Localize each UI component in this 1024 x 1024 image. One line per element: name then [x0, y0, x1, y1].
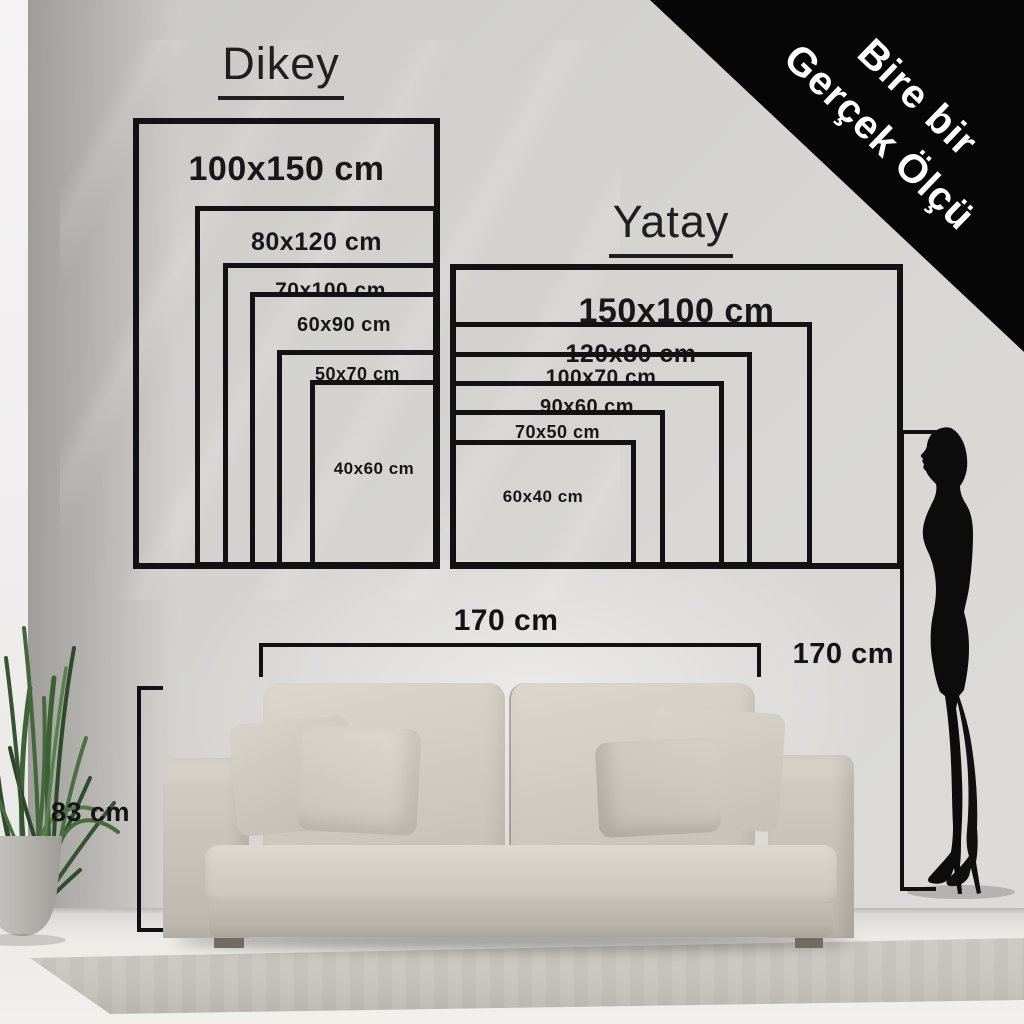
- plant-pot: [0, 836, 62, 936]
- throw-pillow: [297, 724, 421, 836]
- sofa-width-label: 170 cm: [259, 604, 753, 638]
- person-height-bracket: [900, 430, 936, 891]
- ribbon-text: Bire bir Gerçek Ölçü: [741, 0, 1024, 272]
- size-label: 100x150 cm: [139, 150, 434, 189]
- sofa-height-label: 83 cm: [48, 797, 130, 828]
- person-height-label: 170 cm: [780, 638, 894, 671]
- throw-pillow: [595, 737, 722, 838]
- dikey-title: Dikey: [186, 38, 376, 100]
- size-label: 60x40 cm: [455, 487, 631, 507]
- potted-plant: [0, 568, 130, 968]
- size-guide-scene: Dikey 100x150 cm 80x120 cm 70x100 cm 60x…: [0, 0, 1024, 1024]
- sofa-height-bracket: [137, 686, 163, 932]
- size-rect-40x60: 40x60 cm: [310, 380, 438, 567]
- size-label: 80x120 cm: [200, 228, 433, 257]
- sofa-width-bracket: [259, 643, 761, 677]
- sofa-base: [209, 903, 833, 937]
- size-rect-60x40: 60x40 cm: [450, 440, 636, 567]
- size-label: 40x60 cm: [315, 459, 433, 479]
- size-label: 60x90 cm: [255, 314, 433, 337]
- sofa-seat-cushion: [205, 845, 837, 907]
- yatay-title: Yatay: [576, 196, 766, 258]
